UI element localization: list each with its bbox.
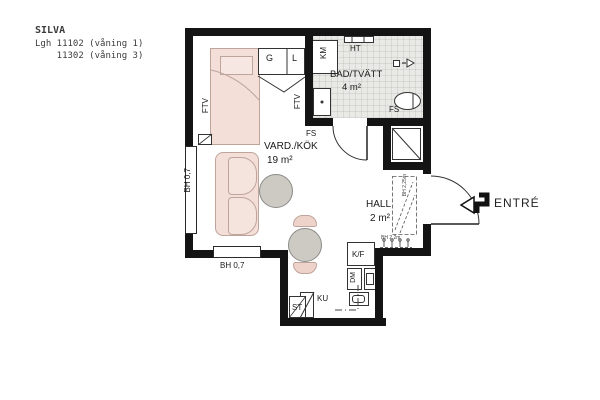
shaft <box>392 128 421 160</box>
closet-chevron <box>258 76 305 92</box>
living-room-name: VARD./KÖK <box>264 142 318 152</box>
fs-wall-label: FS <box>306 130 316 138</box>
closet-g-label: G <box>266 54 273 63</box>
wall-step-left <box>280 250 288 326</box>
bathroom-name: BAD/TVÄTT <box>330 70 382 80</box>
wall-right-stub <box>423 224 431 256</box>
entry-label: ENTRÉ <box>494 197 540 209</box>
entry-door-arc <box>431 176 479 224</box>
wall-shaft-bottom <box>383 162 431 170</box>
counter-unit-inner <box>366 273 374 285</box>
bathroom-area: 4 m² <box>342 83 361 93</box>
bath-door-arc <box>333 126 367 160</box>
sofa-cushion-top <box>228 157 257 195</box>
hall-wardrobe-diag-2 <box>400 195 415 233</box>
wall-right-upper <box>423 28 431 174</box>
hall-rail-dim: BH 2,25m <box>403 174 408 196</box>
wall-top <box>185 28 431 36</box>
wall-kitchen-right <box>375 256 383 326</box>
apartment-line-1: Lgh 11102 (våning 1) <box>35 40 143 49</box>
fridge-freezer: K/F <box>347 242 375 266</box>
wall-bottom-left-1 <box>185 250 213 258</box>
dining-table <box>288 228 322 262</box>
dining-chair-top <box>293 215 317 227</box>
window-bottom-dim: BH 0,7 <box>220 262 244 270</box>
hall-area: 2 m² <box>370 214 390 224</box>
wall-bath-bottom-a <box>305 118 333 126</box>
ftv-left-label: FTV <box>202 98 210 113</box>
living-room-area: 19 m² <box>267 156 293 166</box>
entry-arrow-icon <box>461 195 487 213</box>
ftv-outlet-box <box>198 134 212 145</box>
hall-hooks-dim: BH 2,2m <box>381 236 400 241</box>
towel-dryer <box>344 36 374 43</box>
wall-bath-left <box>305 36 313 126</box>
bed-pillow <box>220 56 253 75</box>
cleaning-closet-label: ST <box>292 304 302 312</box>
ftv-mid-label: FTV <box>294 94 302 109</box>
fridge-freezer-label: K/F <box>352 251 364 259</box>
round-table <box>259 174 293 208</box>
wall-bath-bottom-b <box>367 118 431 126</box>
dishwasher: DM <box>347 268 362 290</box>
kitchen-sink-bowl <box>352 295 365 303</box>
ku-label: KU <box>317 295 328 303</box>
project-title: SILVA <box>35 26 65 36</box>
dishwasher-label: DM <box>350 272 357 283</box>
cleaning-closet: ST <box>289 296 306 318</box>
dining-chair-bottom <box>293 262 317 274</box>
window-left-dim: BH 0,7 <box>184 168 192 192</box>
fs-bath-label: FS <box>389 106 399 114</box>
floor-drain <box>393 60 400 67</box>
hall-name: HALL <box>366 200 391 210</box>
bath-sink <box>313 88 331 116</box>
sofa-cushion-bottom <box>228 197 257 235</box>
wall-left-upper <box>185 28 193 146</box>
washing-machine-label: KM <box>320 47 328 59</box>
towel-dryer-label: HT <box>350 45 361 53</box>
window-bottom <box>213 246 261 258</box>
apartment-line-2: 11302 (våning 3) <box>35 52 143 61</box>
floor-plan-canvas: SILVA Lgh 11102 (våning 1) 11302 (våning… <box>0 0 600 400</box>
closet-l-label: L <box>292 54 297 63</box>
wall-bottom-main <box>280 318 386 326</box>
